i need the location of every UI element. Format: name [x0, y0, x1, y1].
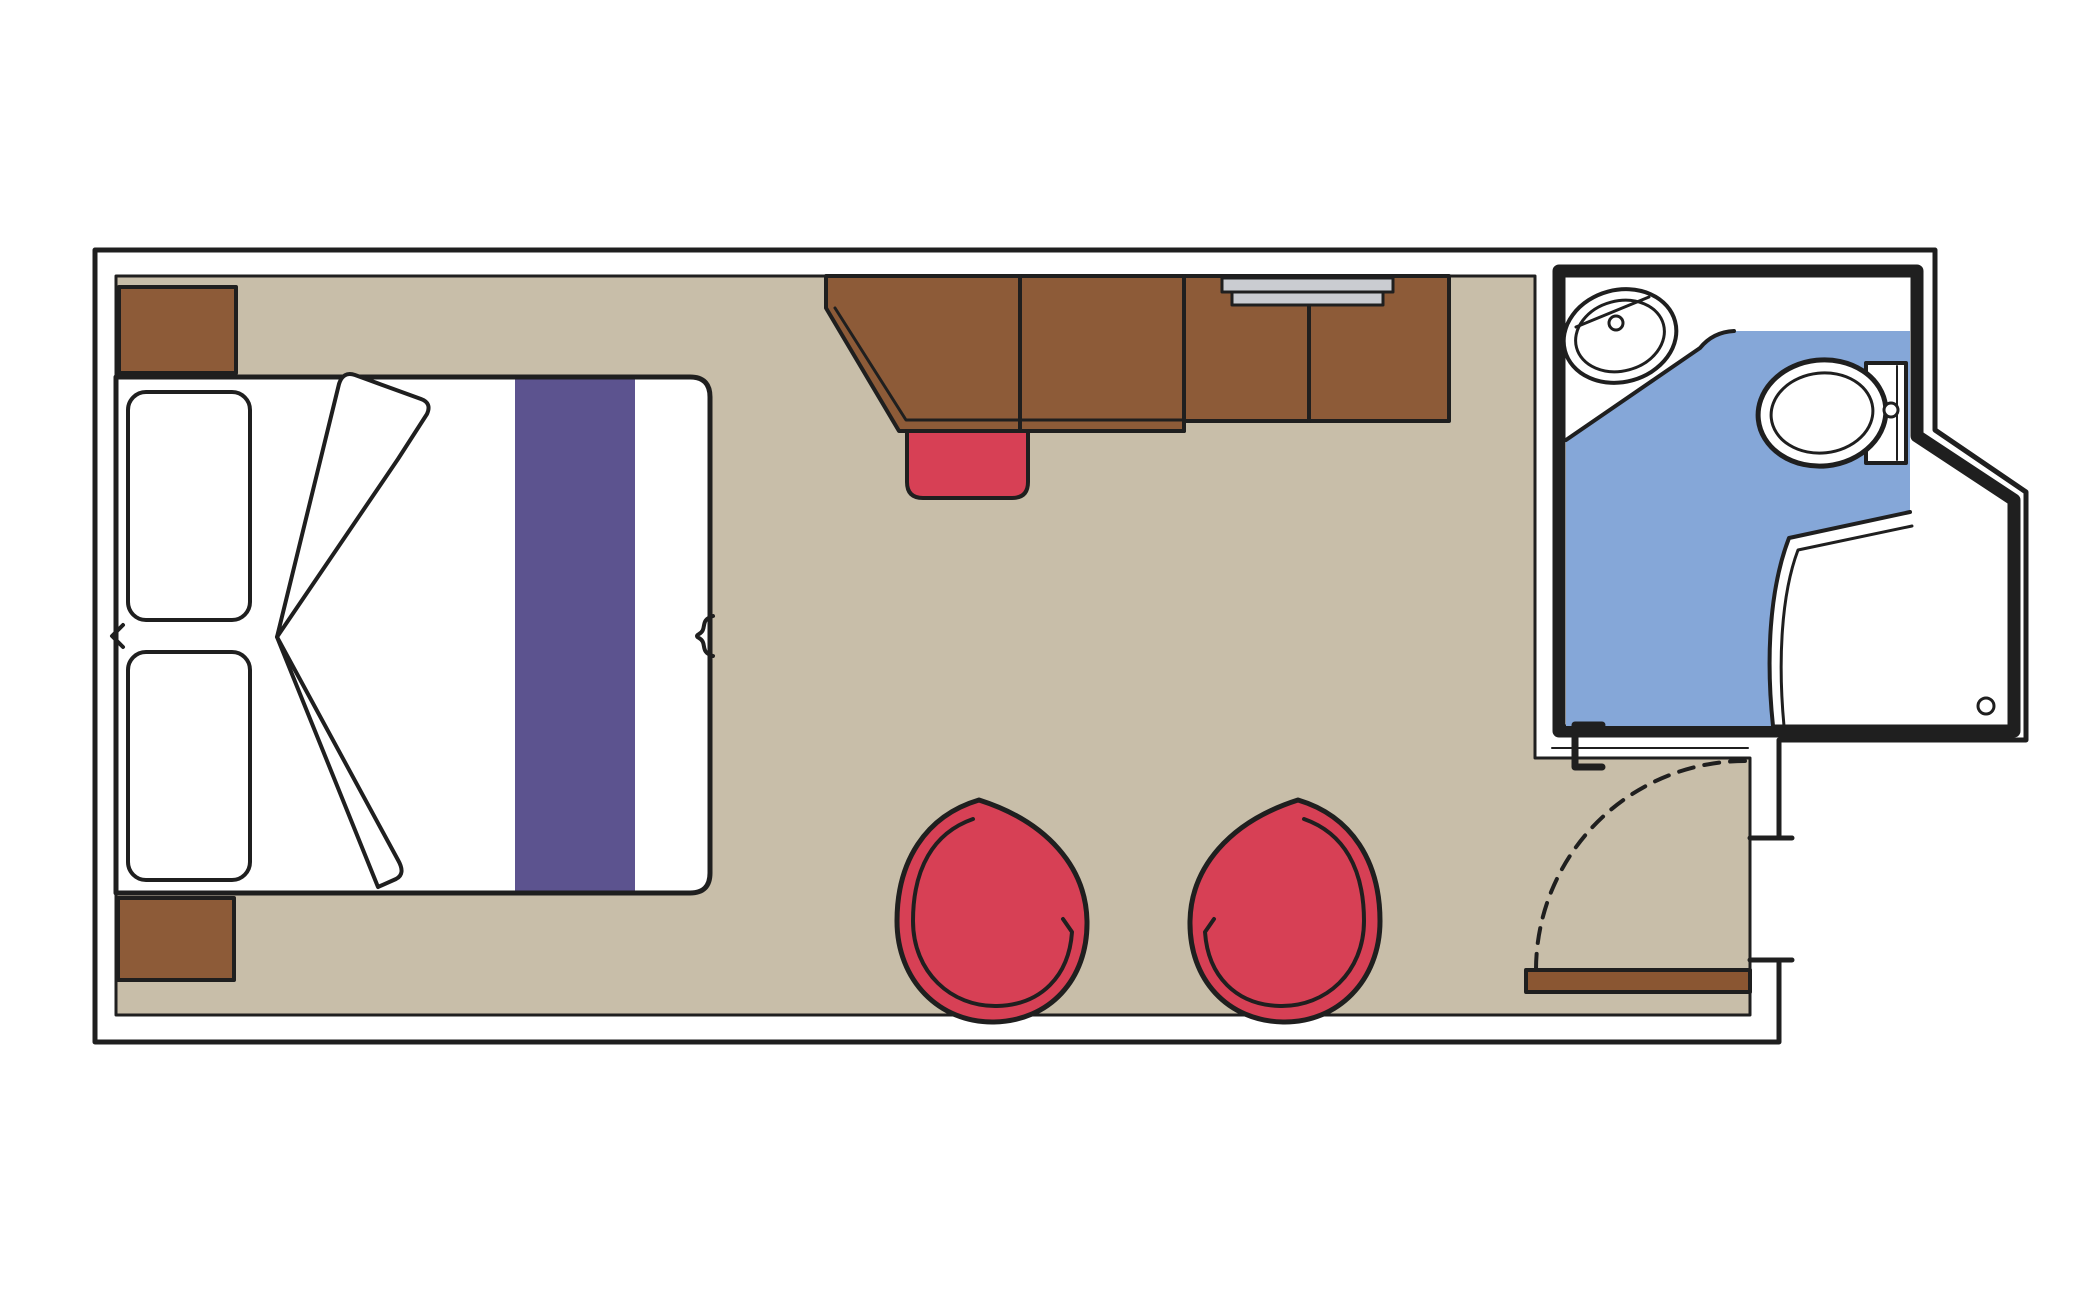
sink-drain — [1609, 316, 1623, 330]
wall-shelf — [1222, 278, 1393, 292]
double-bed — [112, 374, 713, 893]
bed-runner — [515, 379, 635, 891]
wall-shelf-lower — [1232, 292, 1383, 305]
nightstand-bottom — [118, 898, 234, 980]
doorway-opening — [1764, 838, 1792, 960]
nightstand-top — [119, 287, 236, 373]
pillow-top — [128, 392, 250, 620]
flush-button — [1884, 403, 1898, 417]
shower-drain — [1978, 698, 1994, 714]
pillow-bottom — [128, 652, 250, 880]
entry-door-leaf — [1526, 970, 1750, 992]
floor-plan-canvas — [0, 0, 2099, 1299]
floor-plan-drawing — [0, 0, 2099, 1299]
desk-cabinet-unit — [826, 276, 1449, 431]
bathroom — [1552, 271, 2014, 767]
vanity-stool — [907, 431, 1028, 498]
